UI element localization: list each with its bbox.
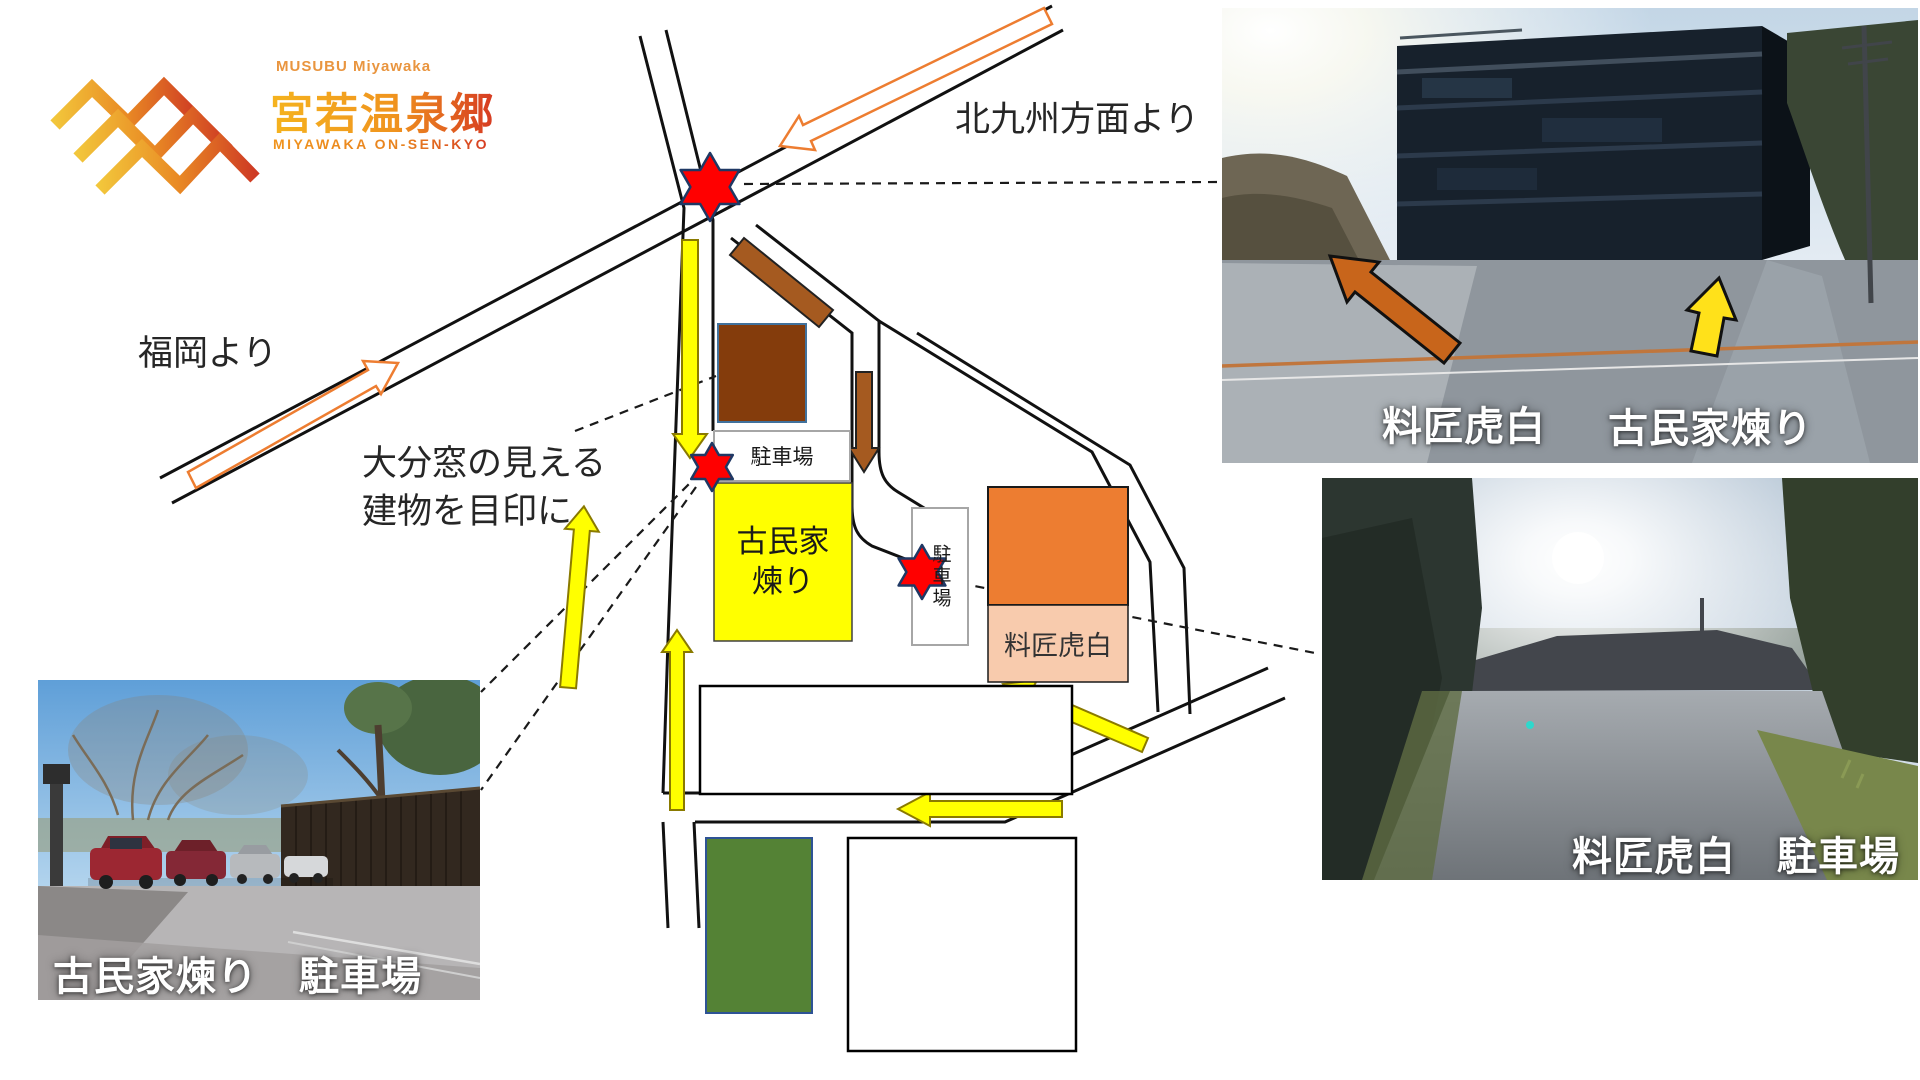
- photo-kohaku-parking-art: [1322, 478, 1918, 880]
- kohaku-building: [988, 487, 1128, 605]
- kohaku-building-label: 料匠虎白: [988, 605, 1128, 682]
- white-building-bottom: [848, 838, 1076, 1051]
- neri-parking-label: 駐車場: [714, 431, 850, 481]
- logo-tagline: MUSUBU Miyawaka: [276, 58, 431, 75]
- photo-building-label-kominka: 古民家煉り: [1608, 396, 1813, 454]
- kominka-neri-line1: 古民家: [737, 522, 830, 562]
- green-field: [706, 838, 812, 1013]
- logo: MUSUBU Miyawaka 宮若温泉郷 MIYAWAKA ON-SEN-KY…: [30, 40, 500, 180]
- glass-building: [1397, 26, 1810, 266]
- kohaku-parking-label: 駐車場: [912, 508, 968, 645]
- route-bar-brown: [730, 238, 833, 327]
- photo-neri-parking-label: 古民家煉り 駐車場: [53, 944, 422, 1000]
- landmark-building-brown: [718, 324, 806, 422]
- landmark-note-line2: 建物を目印に: [362, 488, 606, 536]
- label-from-kitakyushu: 北九州方面より: [955, 96, 1199, 144]
- photo-building-art: [1222, 8, 1918, 463]
- logo-mark-icon: [40, 50, 280, 195]
- callout-line-intersection-to-photo: [744, 182, 1218, 184]
- access-map-page: MUSUBU Miyawaka 宮若温泉郷 MIYAWAKA ON-SEN-KY…: [0, 0, 1920, 1080]
- photo-building: 料匠虎白 古民家煉り: [1222, 8, 1918, 463]
- kominka-neri-line2: 煉り: [752, 562, 814, 602]
- landmark-note-line1: 大分窓の見える: [362, 440, 606, 488]
- kominka-neri-label: 古民家 煉り: [714, 483, 852, 641]
- lens-flare-dot: [1526, 721, 1534, 729]
- logo-subtitle: MIYAWAKA ON-SEN-KYO: [273, 136, 489, 152]
- photo-neri-parking: 古民家煉り 駐車場: [38, 680, 480, 1000]
- label-from-fukuoka: 福岡より: [138, 330, 277, 378]
- label-landmark-note: 大分窓の見える 建物を目印に: [362, 440, 606, 537]
- photo-building-label-kohaku: 料匠虎白: [1382, 394, 1546, 452]
- photo-kohaku-parking-label: 料匠虎白 駐車場: [1572, 824, 1900, 880]
- outbuilding-rect: [700, 686, 1072, 794]
- photo-kohaku-parking: 料匠虎白 駐車場: [1322, 478, 1918, 880]
- intersection-star: [681, 153, 740, 221]
- logo-title: 宮若温泉郷: [270, 80, 495, 142]
